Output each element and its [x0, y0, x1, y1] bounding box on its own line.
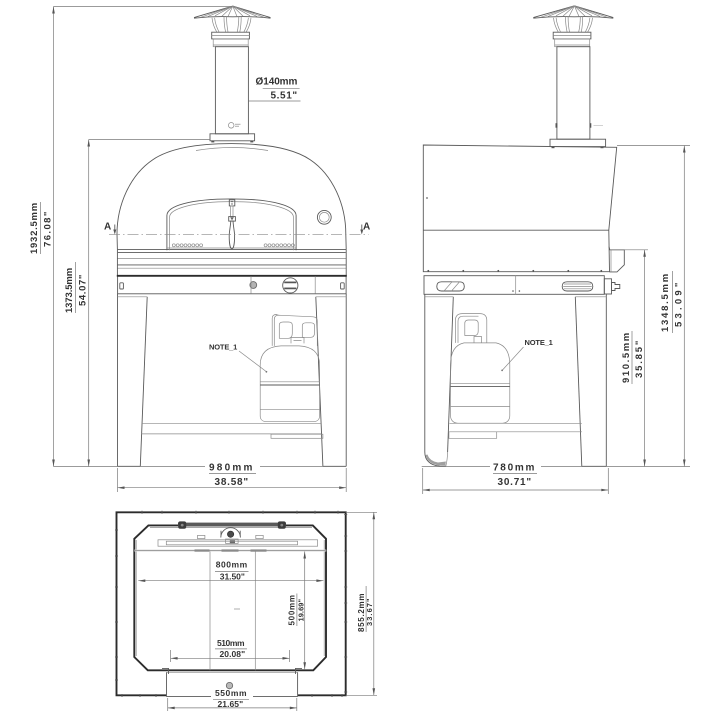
svg-text:A: A [363, 222, 370, 233]
svg-text:54.07": 54.07" [78, 273, 89, 306]
svg-text:800mm: 800mm [216, 560, 248, 570]
svg-text:20.08": 20.08" [220, 649, 246, 659]
svg-text:NOTE_1: NOTE_1 [209, 343, 238, 352]
svg-text:Ø140mm: Ø140mm [256, 77, 301, 88]
svg-text:21.65": 21.65" [218, 699, 244, 709]
svg-text:1348.5mm: 1348.5mm [660, 273, 671, 332]
svg-text:5.51": 5.51" [271, 90, 299, 101]
svg-text:76.08": 76.08" [43, 210, 54, 247]
svg-text:38.58": 38.58" [215, 477, 250, 488]
svg-text:19.69": 19.69" [297, 598, 306, 621]
svg-text:550mm: 550mm [215, 688, 247, 698]
svg-text:1932.5mm: 1932.5mm [29, 202, 40, 254]
svg-text:NOTE_1: NOTE_1 [525, 338, 554, 347]
svg-text:A: A [104, 222, 111, 233]
svg-text:30.71": 30.71" [498, 477, 533, 488]
svg-text:910.5mm: 910.5mm [621, 332, 632, 383]
svg-text:33.67": 33.67" [365, 598, 374, 626]
svg-text:780mm: 780mm [493, 463, 537, 474]
svg-text:31.50": 31.50" [220, 571, 246, 581]
svg-text:980mm: 980mm [209, 463, 255, 474]
svg-text:500mm: 500mm [288, 595, 297, 626]
svg-text:1373.5mm: 1373.5mm [64, 267, 75, 313]
svg-text:35.85": 35.85" [634, 339, 645, 378]
svg-text:510mm: 510mm [217, 638, 245, 648]
